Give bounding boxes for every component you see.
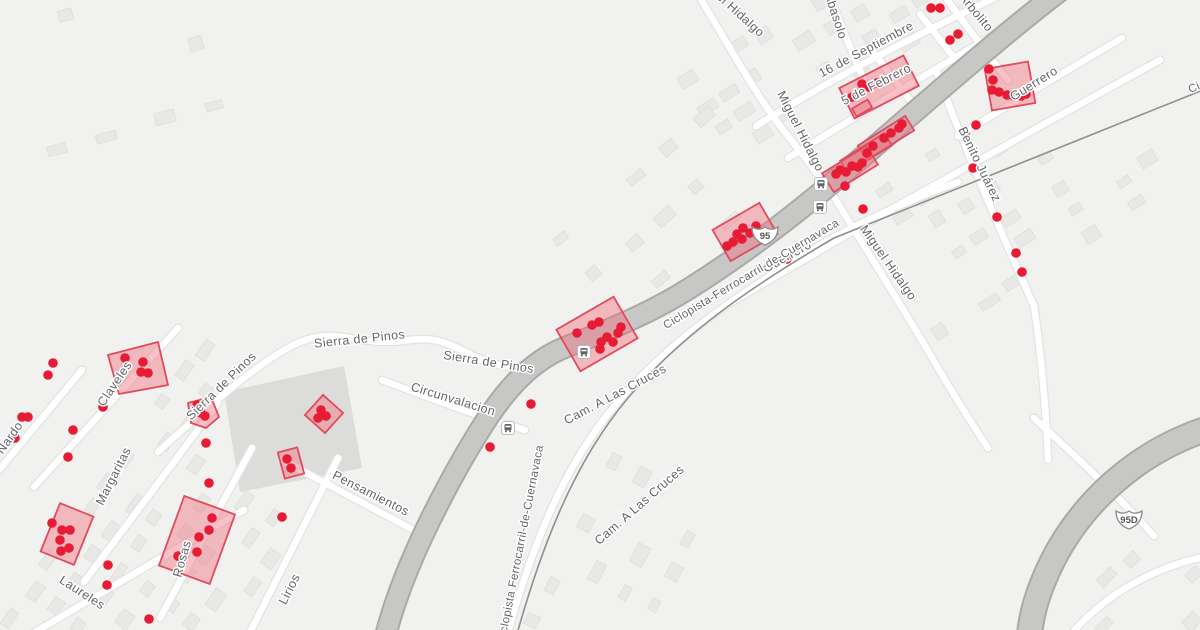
point-marker[interactable] [485, 442, 495, 452]
point-marker[interactable] [971, 120, 981, 130]
point-marker[interactable] [144, 614, 154, 624]
point-marker[interactable] [984, 64, 994, 74]
point-marker[interactable] [594, 317, 604, 327]
street-label: Sierra de Pinos [313, 327, 405, 350]
point-marker[interactable] [897, 119, 907, 129]
point-marker[interactable] [1011, 248, 1021, 258]
point-marker[interactable] [138, 357, 148, 367]
route-shield-95D: 95D [1116, 511, 1142, 529]
point-marker[interactable] [55, 535, 65, 545]
point-marker[interactable] [277, 512, 287, 522]
map-svg[interactable]: 9595D Sierra de PinosSierra de PinosSier… [0, 0, 1200, 630]
point-marker[interactable] [192, 547, 202, 557]
point-marker[interactable] [945, 35, 955, 45]
bus-stop-icon[interactable] [814, 201, 827, 214]
point-marker[interactable] [526, 399, 536, 409]
bus-stop-icon[interactable] [815, 178, 828, 191]
street-label: Cam. A Las Cruces [562, 362, 669, 428]
point-marker[interactable] [988, 75, 998, 85]
point-marker[interactable] [286, 463, 296, 473]
point-marker[interactable] [204, 525, 214, 535]
point-marker[interactable] [737, 234, 747, 244]
map-canvas[interactable]: 9595D Sierra de PinosSierra de PinosSier… [0, 0, 1200, 630]
point-marker[interactable] [1017, 267, 1027, 277]
point-marker[interactable] [840, 181, 850, 191]
point-marker[interactable] [48, 358, 58, 368]
point-marker[interactable] [47, 518, 57, 528]
point-marker[interactable] [953, 29, 963, 39]
point-marker[interactable] [321, 411, 331, 421]
point-marker[interactable] [313, 413, 323, 423]
street-label: Abasolo [822, 0, 850, 41]
point-marker[interactable] [201, 438, 211, 448]
point-marker[interactable] [572, 328, 582, 338]
point-marker[interactable] [595, 344, 605, 354]
point-marker[interactable] [282, 454, 292, 464]
street-label: Sierra de Pinos [442, 348, 535, 376]
point-marker[interactable] [194, 532, 204, 542]
point-marker[interactable] [935, 3, 945, 13]
bus-stop-icon[interactable] [502, 422, 515, 435]
point-marker[interactable] [102, 580, 112, 590]
point-marker[interactable] [103, 560, 113, 570]
point-marker[interactable] [63, 452, 73, 462]
street-label: Margaritas [93, 445, 134, 508]
point-marker[interactable] [68, 425, 78, 435]
point-marker[interactable] [616, 322, 626, 332]
point-marker[interactable] [992, 212, 1002, 222]
point-marker[interactable] [23, 412, 33, 422]
highlighted-area[interactable] [556, 297, 637, 372]
bus-stop-icon[interactable] [578, 346, 591, 359]
svg-text:95: 95 [760, 231, 771, 242]
point-marker[interactable] [926, 3, 936, 13]
point-marker[interactable] [608, 337, 618, 347]
point-marker[interactable] [56, 546, 66, 556]
point-marker[interactable] [857, 158, 867, 168]
point-marker[interactable] [143, 368, 153, 378]
point-marker[interactable] [207, 513, 217, 523]
point-marker[interactable] [43, 370, 53, 380]
point-marker[interactable] [858, 204, 868, 214]
point-marker[interactable] [862, 148, 872, 158]
point-marker[interactable] [886, 128, 896, 138]
point-marker[interactable] [204, 478, 214, 488]
svg-text:95D: 95D [1120, 515, 1138, 526]
point-marker[interactable] [65, 525, 75, 535]
street-label: Ciclopista-Ferrocarril-de-Cuernavaca [1187, 2, 1200, 96]
